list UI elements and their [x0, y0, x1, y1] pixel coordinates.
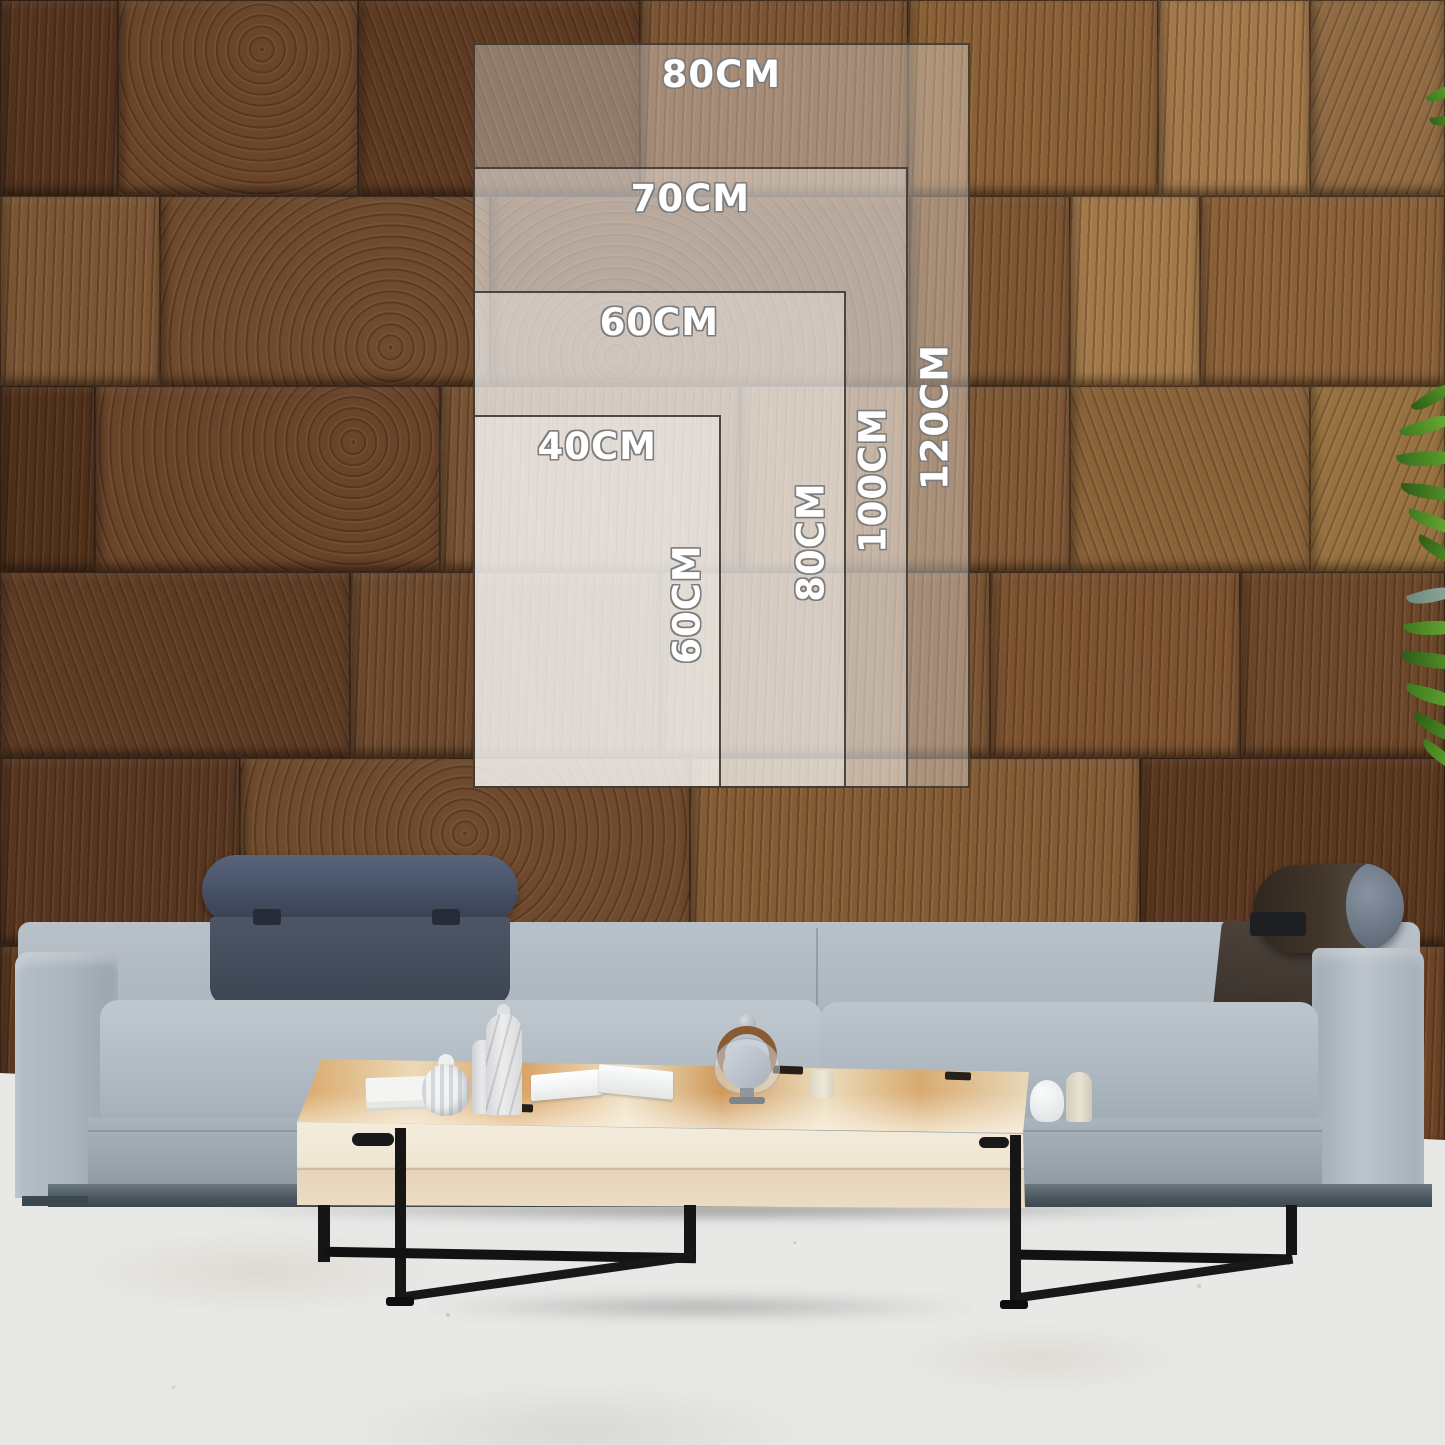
small-cream-cylinder	[810, 1070, 834, 1098]
leg-mid-left-bar	[684, 1205, 696, 1257]
right-headrest-bolster	[1253, 861, 1406, 954]
wood-block	[0, 196, 160, 386]
leg-front-left-bar	[395, 1128, 406, 1304]
left-headrest-strap-left	[253, 909, 281, 925]
wood-block	[1158, 0, 1310, 196]
left-headrest-panel	[210, 917, 510, 1005]
left-headrest-roll	[202, 855, 518, 925]
marble-vase-body	[486, 1014, 522, 1115]
leg-foot-left	[386, 1297, 414, 1306]
leg-back-right-bar	[1286, 1205, 1297, 1255]
size-height-label-70x100: 100CM	[852, 169, 896, 790]
left-headrest	[202, 855, 518, 1005]
leg-front-right-bar	[1010, 1135, 1021, 1307]
left-headrest-strap-right	[432, 909, 460, 925]
table-handle-left	[352, 1133, 394, 1146]
table-handle-right	[979, 1137, 1009, 1148]
wood-block	[160, 196, 490, 386]
wood-block	[0, 386, 95, 572]
open-book-right-page	[599, 1064, 673, 1100]
white-dome-object	[1030, 1080, 1064, 1122]
size-rect-40x60: 40CM60CM	[473, 415, 721, 788]
product-size-guide-scene: 80CM120CM70CM100CM60CM80CM40CM60CM	[0, 0, 1445, 1445]
wood-block	[1310, 0, 1445, 196]
open-book-left-page	[531, 1069, 603, 1101]
pear-vase-body	[422, 1064, 470, 1116]
pear-vase	[422, 1054, 470, 1116]
leg-foot-right	[1000, 1300, 1028, 1309]
open-book	[531, 1066, 673, 1100]
wood-block	[95, 386, 440, 572]
wood-block	[990, 572, 1240, 758]
sofa-base-lip	[22, 1196, 88, 1206]
sofa-right-arm	[1312, 948, 1424, 1198]
size-height-label-80x120: 120CM	[914, 45, 958, 790]
wood-block	[0, 572, 350, 758]
wood-block	[0, 0, 118, 196]
cloche-base	[729, 1097, 765, 1104]
wood-block	[1070, 196, 1200, 386]
size-width-label-60x80: 60CM	[475, 301, 844, 345]
glass-cloche	[712, 1014, 782, 1104]
size-width-label-70x100: 70CM	[475, 177, 906, 221]
bolster-bracket	[1250, 912, 1306, 936]
cloche-mirror	[723, 1045, 771, 1089]
wood-block	[1200, 196, 1445, 386]
table-face-seam	[297, 1168, 1025, 1170]
table-front-face	[297, 1121, 1025, 1208]
wood-block	[118, 0, 358, 196]
size-width-label-80x120: 80CM	[475, 53, 968, 97]
marble-vase-tall	[486, 1004, 522, 1115]
wood-block	[1070, 386, 1310, 572]
size-height-label-40x60: 60CM	[665, 417, 709, 790]
cream-dome-cylinder	[1066, 1072, 1092, 1122]
table-hinge-3	[945, 1072, 971, 1081]
size-height-label-60x80: 80CM	[790, 293, 834, 790]
